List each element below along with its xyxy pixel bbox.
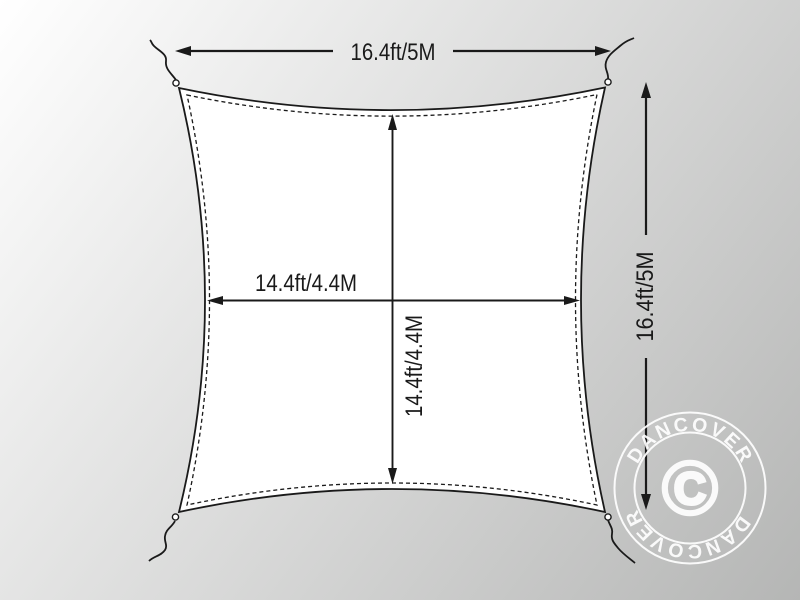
- svg-text:C: C: [674, 463, 707, 514]
- svg-text:14.4ft/4.4M: 14.4ft/4.4M: [400, 315, 427, 417]
- svg-text:16.4ft/5M: 16.4ft/5M: [631, 251, 658, 341]
- svg-text:14.4ft/4.4M: 14.4ft/4.4M: [255, 269, 357, 296]
- svg-text:16.4ft/5M: 16.4ft/5M: [350, 38, 435, 65]
